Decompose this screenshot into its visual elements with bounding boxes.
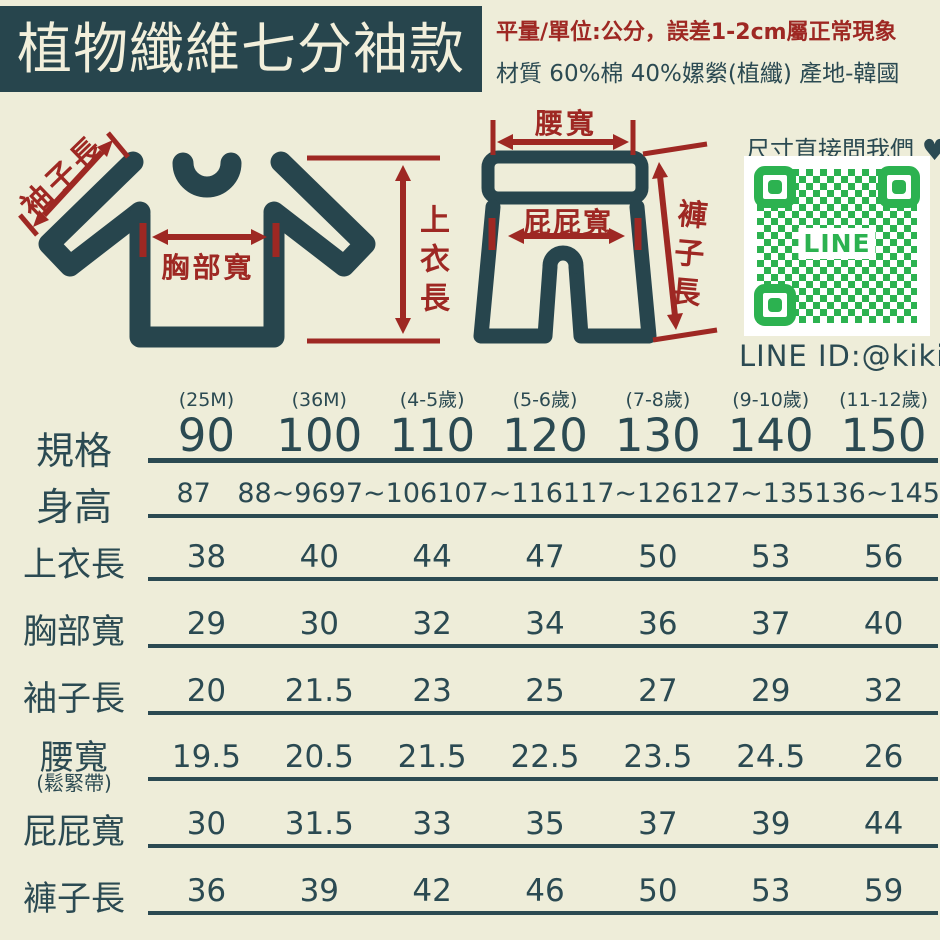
hip-width-label: 屁屁寬 <box>517 201 619 241</box>
table-age-header-row: (25M) (36M) (4-5歲) (5-6歲) (7-8歲) (9-10歲)… <box>0 391 940 411</box>
size-header: 100 <box>263 412 376 459</box>
size-value: 44 <box>827 808 940 841</box>
size-value: 50 <box>601 875 714 908</box>
size-value: 34 <box>489 608 602 641</box>
size-value: 38 <box>150 541 263 574</box>
table-row-height: 87 88~96 97~106 107~116 117~126 127~135 … <box>0 480 940 508</box>
age-header: (5-6歲) <box>489 391 602 411</box>
size-header: 120 <box>489 412 602 459</box>
qr-line-logo: LINE <box>798 228 875 259</box>
age-header: (9-10歲) <box>714 391 827 411</box>
size-value: 27 <box>601 675 714 708</box>
size-value: 20 <box>150 675 263 708</box>
size-value: 29 <box>150 608 263 641</box>
size-value: 20.5 <box>263 741 376 774</box>
size-value: 37 <box>601 808 714 841</box>
size-header: 150 <box>827 412 940 459</box>
table-row-sleeve-length: 20 21.5 23 25 27 29 32 <box>0 675 940 708</box>
size-header: 110 <box>376 412 489 459</box>
size-value: 29 <box>714 675 827 708</box>
size-chart-page: 植物纖維七分袖款 平量/單位:公分，誤差1-2cm屬正常現象 材質 60%棉 4… <box>0 0 940 940</box>
size-value: 59 <box>827 875 940 908</box>
table-row-pants-length: 36 39 42 46 50 53 59 <box>0 875 940 908</box>
row-spacer <box>0 541 150 574</box>
size-value: 23.5 <box>601 741 714 774</box>
table-corner-spacer <box>0 391 150 411</box>
table-rule <box>148 777 938 781</box>
table-rule <box>148 644 938 648</box>
size-value: 21.5 <box>376 741 489 774</box>
size-value: 47 <box>489 541 602 574</box>
size-value: 30 <box>150 808 263 841</box>
table-row-chest-width: 29 30 32 34 36 37 40 <box>0 608 940 641</box>
size-value: 50 <box>601 541 714 574</box>
size-value: 36 <box>150 875 263 908</box>
size-value: 46 <box>489 875 602 908</box>
size-value: 24.5 <box>714 741 827 774</box>
row-spacer <box>0 741 150 774</box>
age-header: (11-12歲) <box>827 391 940 411</box>
line-qr-code: LINE <box>744 156 930 336</box>
size-value: 19.5 <box>150 741 263 774</box>
qr-finder-bottom-left <box>754 284 796 326</box>
size-value: 25 <box>489 675 602 708</box>
size-value: 23 <box>376 675 489 708</box>
height-value: 87 <box>150 480 237 508</box>
row-spacer <box>0 875 150 908</box>
size-value: 37 <box>714 608 827 641</box>
measure-note: 平量/單位:公分，誤差1-2cm屬正常現象 <box>496 14 936 46</box>
table-row-top-length: 38 40 44 47 50 53 56 <box>0 541 940 574</box>
size-value: 32 <box>376 608 489 641</box>
size-value: 53 <box>714 875 827 908</box>
age-header: (25M) <box>150 391 263 411</box>
line-id-text: LINE ID:@kikis <box>739 339 940 373</box>
table-rule <box>148 458 938 463</box>
pants-outline <box>481 157 649 336</box>
size-header: 90 <box>150 412 263 459</box>
height-value: 136~145 <box>814 480 940 508</box>
qr-finder-top-right <box>878 166 920 208</box>
material-note: 材質 60%棉 40%嫘縈(植纖) 產地-韓國 <box>496 54 936 88</box>
table-rule <box>148 911 938 915</box>
height-value: 97~106 <box>329 480 438 508</box>
height-value: 107~116 <box>437 480 563 508</box>
table-rule <box>148 514 938 518</box>
table-row-hip-width: 30 31.5 33 35 37 39 44 <box>0 808 940 841</box>
page-title: 植物纖維七分袖款 <box>0 6 482 92</box>
size-value: 39 <box>714 808 827 841</box>
table-rule <box>148 844 938 848</box>
qr-finder-dot <box>768 298 782 312</box>
table-row-waist-width: 19.5 20.5 21.5 22.5 23.5 24.5 26 <box>0 741 940 774</box>
size-value: 35 <box>489 808 602 841</box>
size-header: 130 <box>601 412 714 459</box>
size-header: 140 <box>714 412 827 459</box>
size-value: 36 <box>601 608 714 641</box>
table-rule <box>148 577 938 581</box>
row-spacer <box>0 608 150 641</box>
row-spacer <box>0 808 150 841</box>
size-value: 44 <box>376 541 489 574</box>
size-value: 32 <box>827 675 940 708</box>
row-spacer <box>0 675 150 708</box>
size-value: 30 <box>263 608 376 641</box>
age-header: (7-8歲) <box>601 391 714 411</box>
table-rule <box>148 711 938 715</box>
size-value: 22.5 <box>489 741 602 774</box>
qr-finder-dot <box>768 180 782 194</box>
title-banner: 植物纖維七分袖款 <box>0 6 482 92</box>
size-value: 40 <box>263 541 376 574</box>
size-value: 33 <box>376 808 489 841</box>
size-value: 56 <box>827 541 940 574</box>
size-value: 42 <box>376 875 489 908</box>
size-value: 21.5 <box>263 675 376 708</box>
qr-finder-dot <box>892 180 906 194</box>
size-value: 53 <box>714 541 827 574</box>
age-header: (36M) <box>263 391 376 411</box>
size-value: 39 <box>263 875 376 908</box>
qr-finder-top-left <box>754 166 796 208</box>
waist-width-label: 腰寬 <box>528 102 604 142</box>
height-value: 88~96 <box>237 480 328 508</box>
height-value: 127~135 <box>689 480 815 508</box>
top-length-label: 上衣長 <box>409 204 453 321</box>
size-value: 40 <box>827 608 940 641</box>
chest-width-label: 胸部寬 <box>156 246 260 286</box>
table-header-label: 規格 <box>0 420 148 475</box>
age-header: (4-5歲) <box>376 391 489 411</box>
row-spacer <box>0 480 150 508</box>
size-value: 31.5 <box>263 808 376 841</box>
size-value: 26 <box>827 741 940 774</box>
height-value: 117~126 <box>563 480 689 508</box>
